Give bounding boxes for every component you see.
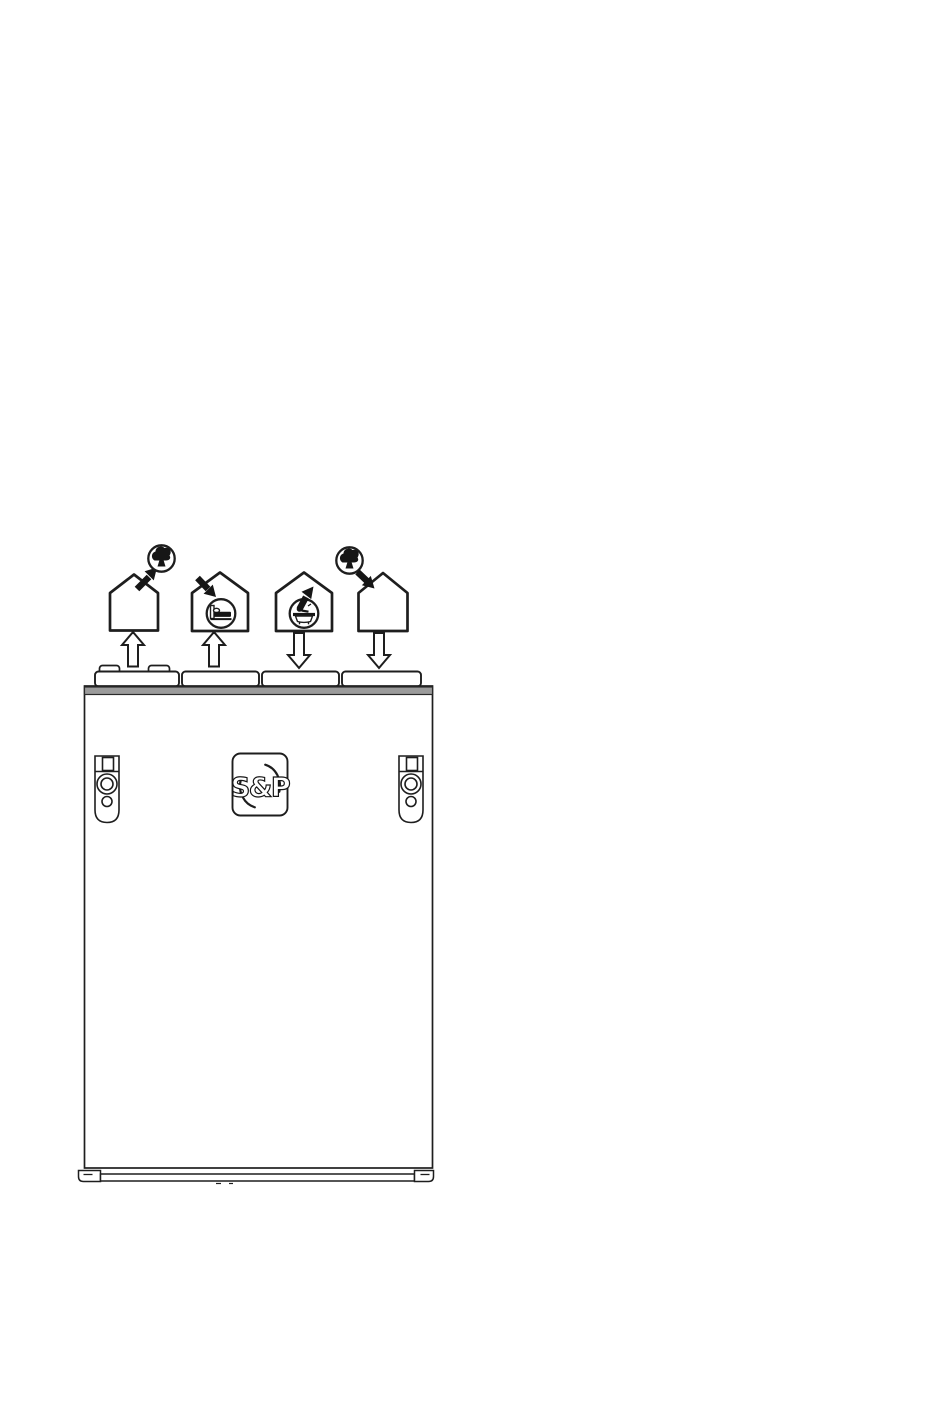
port-1-duct-arrow-up: [122, 632, 144, 667]
sp-logo-text: S&P: [231, 773, 290, 804]
duct-spigot-2: [182, 672, 259, 687]
cabinet-base-group: [79, 1171, 434, 1184]
base-foot-left: [79, 1171, 101, 1182]
bed-room-icon: [207, 599, 236, 628]
flow-arrow-icon: [358, 572, 375, 589]
tree-outdoor-icon: [148, 545, 174, 571]
cabinet-top-band: [85, 687, 433, 695]
duct-spigot-4: [342, 672, 421, 687]
screw-hole-icon: [102, 797, 112, 807]
port-2-house-group: [192, 573, 248, 632]
port-4-house-group: [336, 547, 407, 631]
mounting-bracket-left: [95, 756, 119, 823]
port-2-duct-arrow-up: [203, 632, 225, 667]
duct-spigot-3: [262, 672, 339, 687]
port-4-duct-arrow-down: [368, 633, 390, 668]
ventilation-unit-diagram: S&P: [0, 0, 950, 1425]
unit-cabinet-group: S&P: [79, 666, 434, 1184]
duct-spigot-1: [95, 672, 179, 687]
screw-hole-icon: [406, 797, 416, 807]
house-outline: [110, 575, 158, 631]
mounting-bracket-right: [399, 756, 423, 823]
sp-logo-plate: S&P: [231, 754, 290, 816]
port-3-duct-arrow-down: [288, 633, 310, 668]
page: S&P: [0, 0, 950, 1425]
base-foot-right: [415, 1171, 434, 1182]
port-1-house-group: [110, 545, 175, 630]
tree-outdoor-icon: [336, 547, 362, 573]
port-3-house-group: [276, 573, 332, 632]
base-rail: [101, 1174, 415, 1181]
